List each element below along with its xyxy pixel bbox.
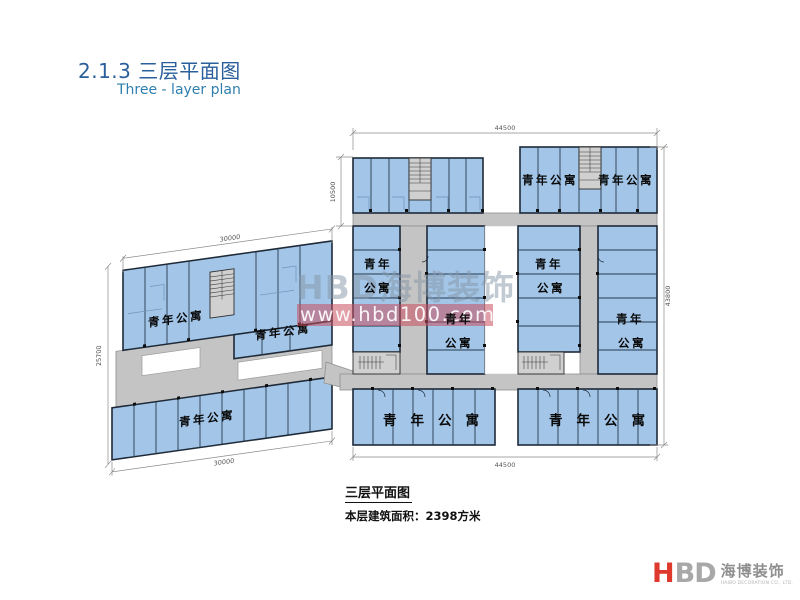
corridor-vertical-right [580, 226, 598, 374]
logo-name-cn: 海博装饰 [721, 563, 793, 580]
logo-letter-h: H [652, 560, 675, 587]
corridor-bottom [340, 374, 657, 390]
room-label: 公寓 [445, 336, 473, 350]
dimension-label: 25700 [95, 345, 103, 367]
room-label: 青年 [535, 257, 563, 271]
room-label: 青年 [616, 312, 644, 326]
watermark-brand: HBD海博装饰 [296, 268, 515, 307]
logo-name-en: HAIBO DECORATION CO., LTD. [721, 581, 793, 586]
room-label: 青年公寓 [549, 412, 659, 429]
presentation-page: 2.1.3 三层平面图 Three - layer plan 青年公 [0, 0, 800, 600]
room-label: 公寓 [364, 281, 392, 295]
dimension-label: 10500 [329, 182, 337, 203]
watermark: HBD海博装饰 www.hbd100.com [296, 268, 515, 326]
caption-area: 本层建筑面积：2398方米 [345, 508, 481, 524]
company-logo: HBD 海博装饰 HAIBO DECORATION CO., LTD. [652, 560, 793, 587]
logo-letters-bd: BD [675, 560, 716, 587]
dimension-label: 43800 [664, 286, 672, 307]
caption-title: 三层平面图 [345, 482, 412, 503]
room-label: 公寓 [618, 336, 646, 350]
room-label: 青年公寓 [383, 412, 493, 429]
room-label: 公寓 [537, 281, 565, 295]
room-label: 青年公寓 [522, 173, 578, 187]
dimension-label: 44500 [495, 124, 516, 132]
corridor-top [353, 213, 657, 226]
plan-caption: 三层平面图 本层建筑面积：2398方米 [345, 482, 481, 524]
left-building: 青年公寓 青年公寓 青年公寓 30000 25700 30000 [95, 220, 335, 485]
room-label: 青年 [364, 257, 392, 271]
dimension-label: 30000 [214, 457, 235, 468]
dimension-label: 44500 [495, 461, 516, 469]
room-column-d [598, 226, 657, 374]
stair-lobby [518, 352, 564, 374]
room-label: 青年公寓 [598, 173, 654, 187]
room-label: 青年 [445, 312, 473, 326]
